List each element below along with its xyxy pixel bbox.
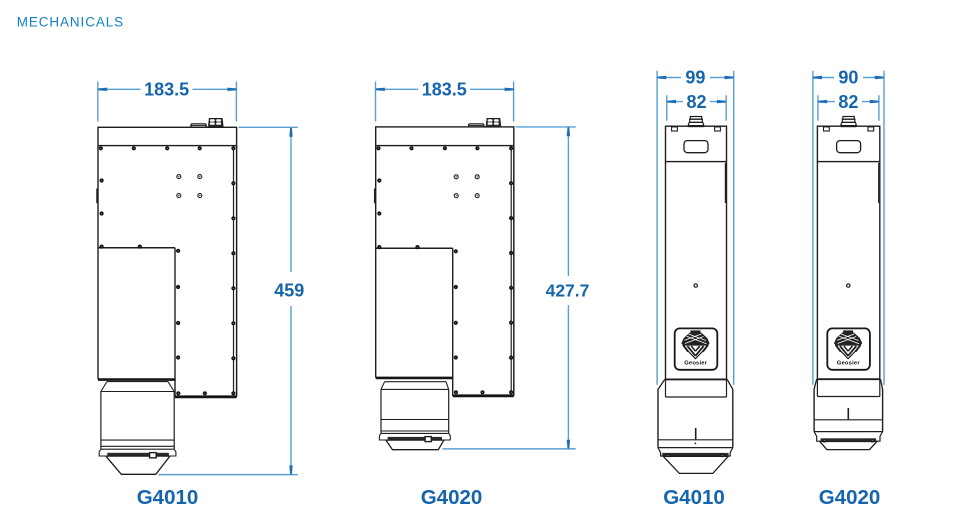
svg-text:G4010: G4010 — [663, 486, 725, 509]
svg-text:82: 82 — [686, 92, 706, 112]
svg-text:90: 90 — [838, 68, 858, 88]
svg-text:459: 459 — [274, 280, 304, 300]
svg-text:G4020: G4020 — [421, 486, 483, 509]
svg-text:427.7: 427.7 — [546, 280, 590, 300]
svg-text:183.5: 183.5 — [144, 80, 189, 100]
svg-text:183.5: 183.5 — [422, 80, 467, 100]
svg-text:82: 82 — [838, 92, 858, 112]
svg-text:Geosier: Geosier — [837, 360, 861, 366]
svg-text:G4010: G4010 — [137, 486, 199, 509]
svg-text:G4020: G4020 — [819, 486, 881, 509]
svg-text:99: 99 — [685, 68, 705, 88]
svg-text:MECHANICALS: MECHANICALS — [17, 15, 124, 30]
svg-text:Geosier: Geosier — [684, 360, 708, 366]
